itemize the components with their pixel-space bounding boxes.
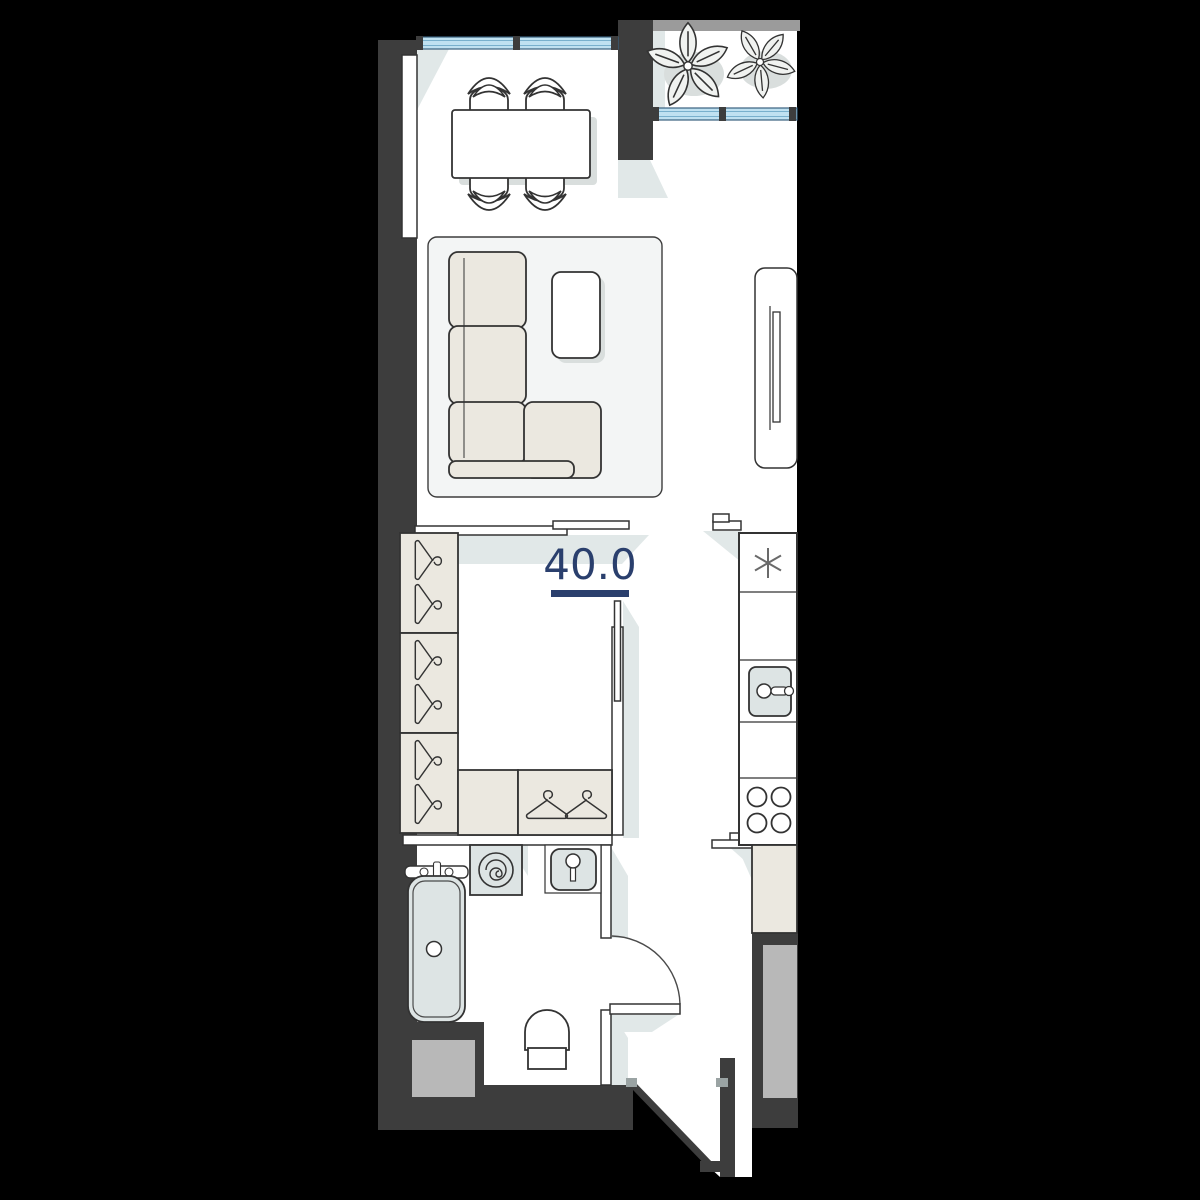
area-underline (551, 590, 629, 597)
sofa-cushion (449, 252, 526, 328)
tv-screen (773, 312, 780, 422)
bathtub (405, 862, 468, 1022)
wardrobe-section (400, 733, 458, 833)
wall-entry-right (720, 1058, 735, 1177)
sofa-cushion (449, 402, 526, 463)
faucet-icon (566, 854, 580, 868)
wardrobe-section (400, 633, 458, 733)
burner (748, 814, 767, 833)
faucet-icon (785, 687, 794, 696)
sliding-door-panel (615, 601, 621, 701)
tub-handle (445, 868, 453, 876)
wall-bathroom-top (403, 835, 612, 845)
wall-top-center (618, 20, 653, 160)
window-mullion (719, 107, 726, 121)
tv-console (755, 268, 797, 468)
tub-drain (427, 942, 442, 957)
entry-door-jamb (626, 1078, 637, 1087)
dresser-cabinet (458, 770, 518, 835)
dresser-cabinet (518, 770, 612, 835)
toilet-bowl (525, 1010, 569, 1050)
sink-drain (757, 684, 771, 698)
utility-shaft (763, 945, 797, 1098)
shadow (653, 30, 665, 108)
window-mullion (513, 36, 520, 50)
sofa-cushion (449, 326, 526, 404)
window-mullion (611, 36, 618, 50)
sliding-door-panel (553, 521, 629, 529)
coffee-table (552, 272, 600, 358)
wall-bathroom-right-lower (601, 1010, 611, 1085)
window-mullion (789, 107, 796, 121)
window-mullion (652, 107, 659, 121)
window-mullion (416, 36, 423, 50)
dining-table (452, 110, 590, 178)
tub-handle (420, 868, 428, 876)
burner (772, 788, 791, 807)
window-balcony (652, 107, 797, 121)
entry-door-jamb (716, 1078, 728, 1087)
area-value: 40.0 (543, 540, 637, 589)
shadow (623, 601, 639, 838)
wall-bathroom-right-upper (601, 845, 611, 938)
burner (772, 814, 791, 833)
bathroom-sink (545, 845, 601, 893)
sliding-door-pocket (713, 514, 729, 522)
wardrobe-section (400, 533, 458, 633)
washing-machine (470, 845, 522, 895)
floor-plan-canvas: 40.0 (0, 0, 1200, 1200)
hallway-cabinet (752, 845, 797, 933)
sofa-seat-front (449, 461, 574, 478)
screenshot-canvas: 40.0 (0, 0, 1200, 1200)
wall-pier (402, 55, 417, 238)
outer-corridor-floor (735, 1058, 752, 1177)
wall-entry-diagonal-end (700, 1161, 723, 1172)
burner (748, 788, 767, 807)
area-label: 40.0 (543, 540, 637, 597)
toilet-base (528, 1048, 566, 1069)
utility-shaft (412, 1040, 475, 1097)
bathroom-door-leaf (610, 1004, 680, 1014)
balcony-parapet (653, 20, 800, 31)
window-top (416, 36, 618, 50)
faucet-icon (571, 868, 576, 881)
toilet (525, 1010, 569, 1069)
kitchen-sink (749, 667, 794, 716)
